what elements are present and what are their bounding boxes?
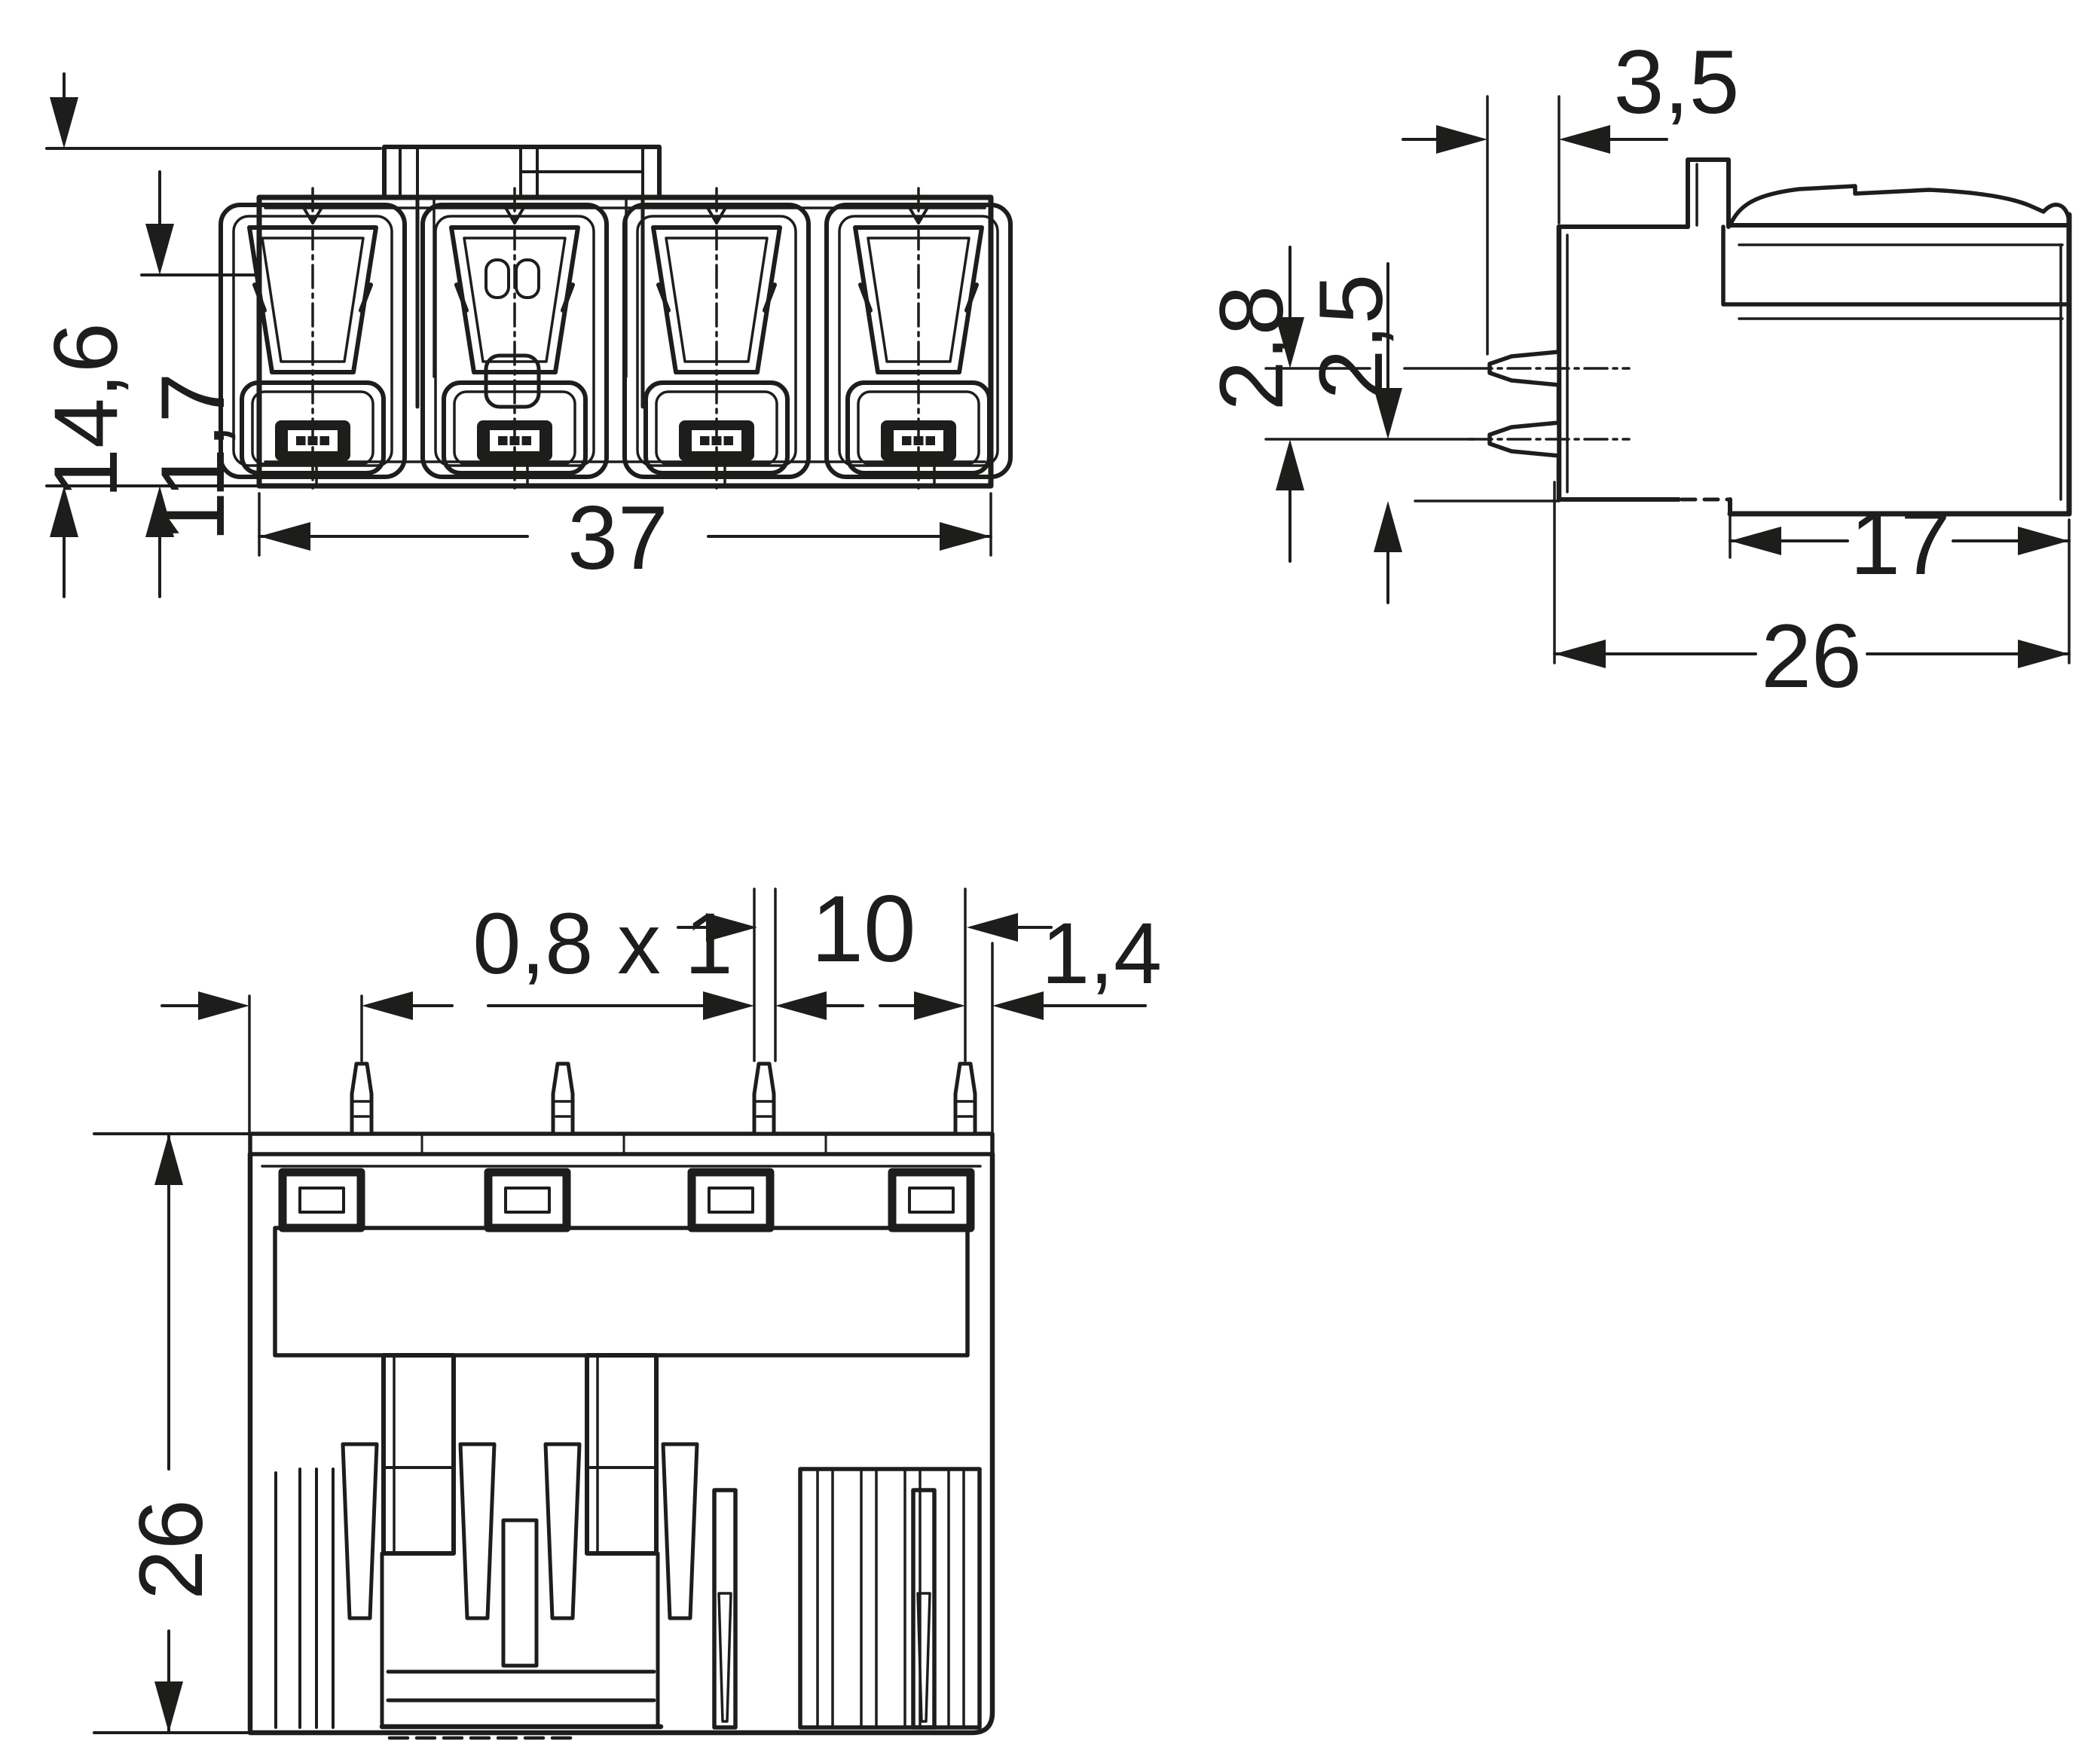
solder-pin-3 — [754, 1064, 774, 1134]
pin-outline — [955, 1064, 975, 1134]
dim-arrow — [145, 224, 174, 275]
flange-plate — [250, 1134, 992, 1154]
pin-outline — [352, 1064, 371, 1134]
dim-label-pin-length: 3,5 — [1614, 32, 1740, 133]
latch-center-pillar — [503, 1520, 536, 1666]
flange-joint — [422, 1135, 826, 1153]
dim-label-pin-cross-section: 0,8 x 1 — [472, 896, 732, 992]
dim-arrow — [198, 991, 249, 1020]
dim-arrow — [1554, 640, 1606, 668]
rib-block — [800, 1469, 980, 1727]
pin-window-inner — [909, 1188, 953, 1212]
rib-lines-left — [276, 1469, 333, 1727]
pin-window — [692, 1172, 770, 1228]
dim-label-height-overall: 14,6 — [35, 322, 136, 499]
latch-mechanism — [343, 1355, 697, 1738]
dim-arrow — [2018, 527, 2069, 555]
dim-arrow — [940, 522, 991, 551]
pin-window-inner — [506, 1188, 549, 1212]
dim-arrow — [775, 991, 827, 1020]
dim-label-width-overall: 37 — [567, 487, 668, 588]
dim-arrow — [1436, 125, 1487, 154]
pin-window — [283, 1172, 361, 1228]
dim-arrow — [1276, 439, 1304, 490]
latch-lever-profile — [1730, 186, 2068, 225]
solder-pin-4 — [955, 1064, 975, 1134]
inner-recess — [275, 1228, 967, 1355]
dim-arrow — [967, 913, 1018, 942]
latch-jaw — [460, 1444, 494, 1618]
center-block-detail — [400, 147, 643, 197]
ext-line — [1487, 96, 1559, 354]
dim-label-height-body: 11,7 — [142, 373, 243, 542]
dim-arrow — [992, 991, 1044, 1020]
keying-notch — [516, 260, 539, 298]
dim-label-pin-row-to-face: 2,5 — [1301, 274, 1402, 400]
pin-window — [892, 1172, 971, 1228]
side-view: 3,5 2,8 2,5 — [1201, 32, 2069, 707]
solder-pin-1 — [352, 1064, 371, 1134]
pin-outline — [553, 1064, 573, 1134]
pole-cavity-3 — [625, 188, 809, 488]
drawing-sheet: 14,6 11,7 37 — [0, 0, 2100, 1744]
guide-post — [913, 1490, 934, 1727]
body-step — [1723, 227, 2069, 304]
top-tab — [1688, 160, 1729, 227]
front-view: 14,6 11,7 37 — [35, 74, 1010, 597]
latch-side — [382, 1553, 658, 1672]
pole-cavity-2 — [423, 188, 607, 488]
dim-arrow — [362, 991, 413, 1020]
pin-window — [488, 1172, 567, 1228]
dim-arrow — [154, 1681, 183, 1733]
dim-arrow — [1559, 125, 1610, 154]
latch-base — [382, 1672, 658, 1727]
dim-arrow — [154, 1134, 183, 1185]
dim-arrow — [1730, 527, 1781, 555]
guide-post-taper — [719, 1593, 731, 1721]
dim-arrow — [2018, 640, 2069, 668]
dim-arrow — [703, 991, 754, 1020]
pin-outline — [754, 1064, 774, 1134]
dim-label-pin-to-edge: 1,4 — [1041, 906, 1162, 1002]
guide-post — [714, 1490, 735, 1727]
dim-arrow — [1374, 501, 1402, 552]
connector-drawing: 14,6 11,7 37 — [0, 0, 2100, 1744]
pole-cavity-4 — [827, 188, 1010, 488]
solder-pin-2 — [553, 1064, 573, 1134]
dim-arrow — [50, 97, 78, 148]
latch-column-inner — [394, 1355, 598, 1553]
dim-label-depth-lower: 17 — [1850, 493, 1950, 594]
latch-jaw — [663, 1444, 697, 1618]
ref-line — [94, 1134, 250, 1733]
pole-cavity-1 — [221, 188, 405, 488]
keying-notch — [486, 260, 509, 298]
rib-lines — [818, 1469, 964, 1727]
pin-window-inner — [709, 1188, 753, 1212]
dim-label-depth-overall-bottom: 26 — [121, 1499, 222, 1599]
bottom-view: 10 0,8 x 1 1,4 26 — [94, 877, 1162, 1738]
dim-label-pin-row-spacing: 2,8 — [1201, 286, 1302, 411]
dim-arrow — [259, 522, 310, 551]
latch-jaw — [343, 1444, 377, 1618]
latch-jaw — [546, 1444, 579, 1618]
dim-arrow — [914, 991, 965, 1020]
pin-window-inner — [300, 1188, 344, 1212]
dim-label-depth-overall: 26 — [1761, 606, 1861, 707]
dim-label-pin-pitch: 10 — [811, 877, 916, 982]
